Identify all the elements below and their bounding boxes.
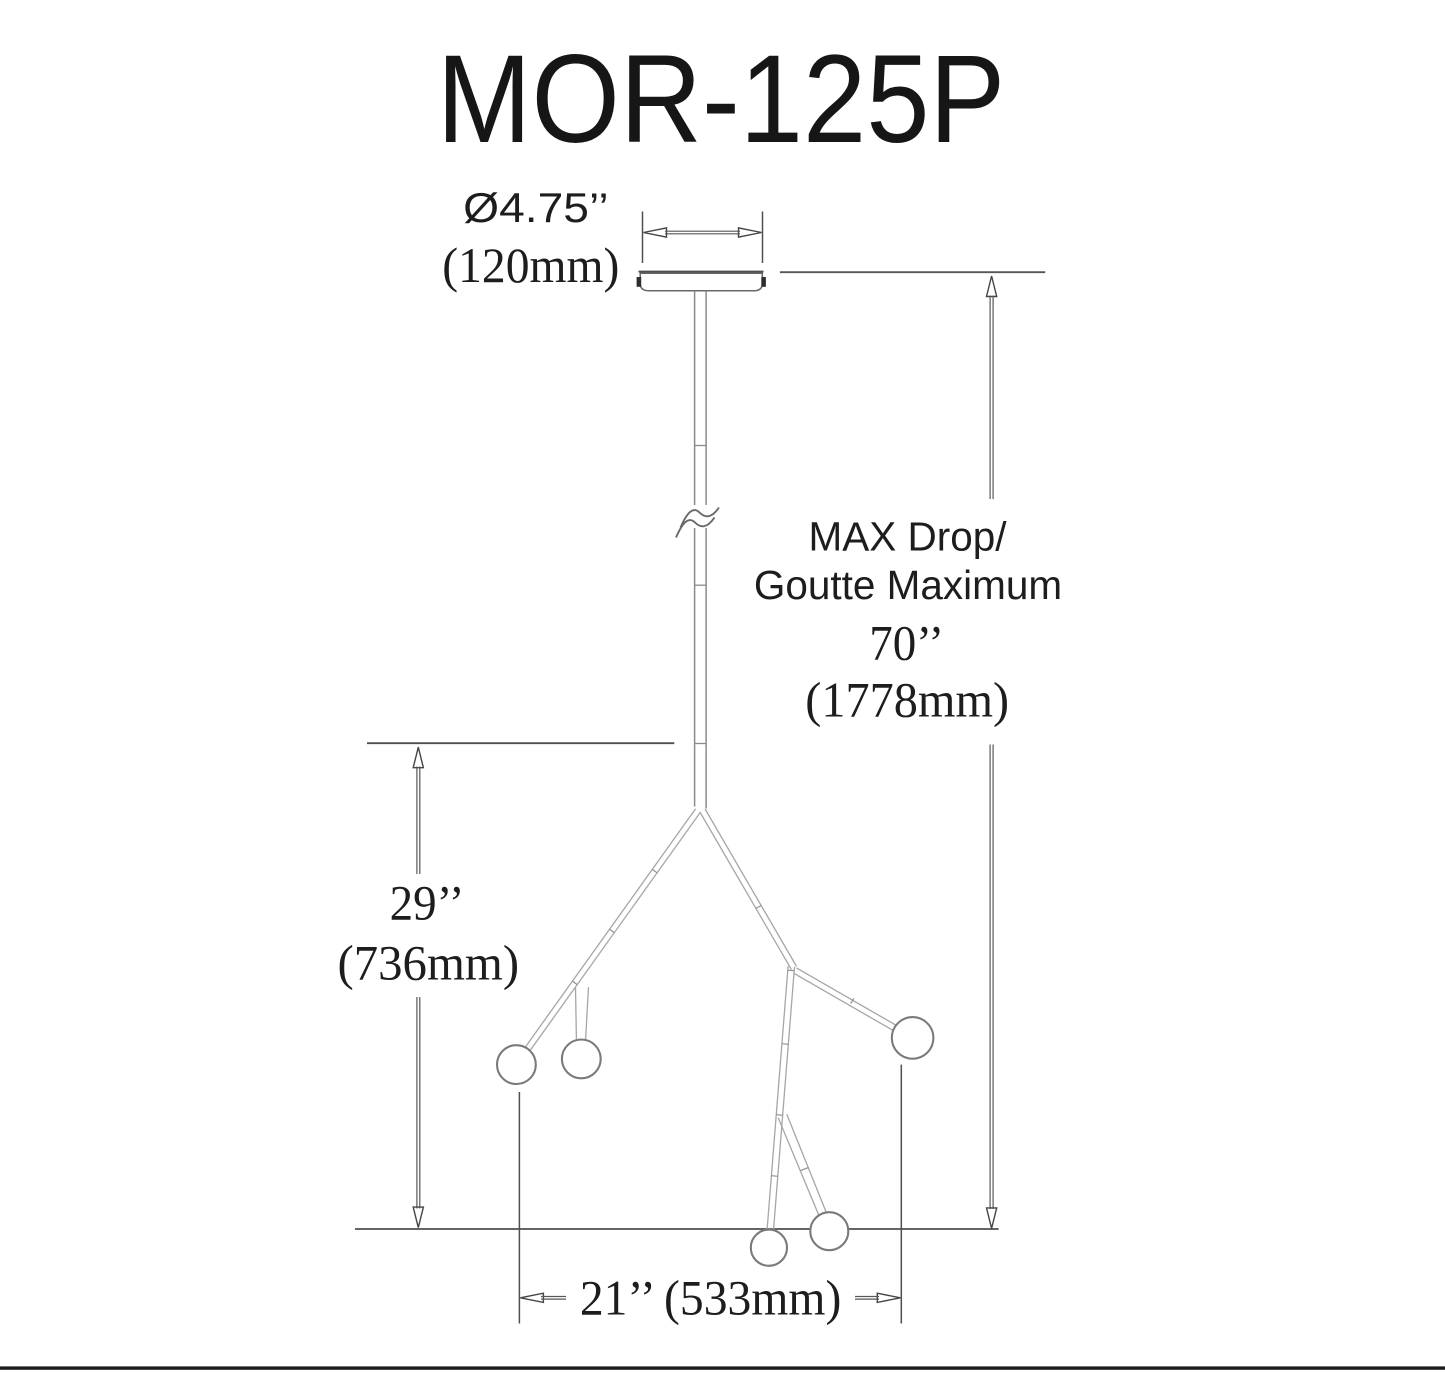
svg-text:Ø4.75’’: Ø4.75’’: [463, 185, 608, 232]
svg-text:(736mm): (736mm): [338, 935, 520, 991]
svg-text:(120mm): (120mm): [442, 238, 619, 293]
svg-text:21’’ (533mm): 21’’ (533mm): [580, 1269, 842, 1325]
svg-text:MOR-125P: MOR-125P: [437, 30, 1005, 169]
svg-text:MAX Drop/: MAX Drop/: [808, 514, 1007, 560]
svg-text:(1778mm): (1778mm): [805, 672, 1009, 728]
svg-text:70’’: 70’’: [869, 616, 944, 671]
svg-text:Goutte Maximum: Goutte Maximum: [754, 562, 1062, 608]
svg-text:29’’: 29’’: [390, 876, 465, 931]
